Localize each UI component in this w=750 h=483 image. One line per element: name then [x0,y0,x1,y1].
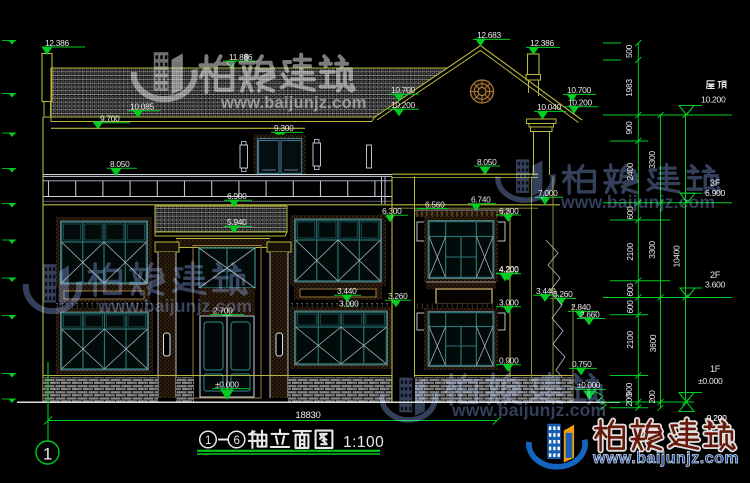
svg-text:8.050: 8.050 [110,159,130,169]
svg-text:900: 900 [624,121,634,135]
svg-text:12.386: 12.386 [530,38,554,48]
svg-text:3300: 3300 [647,151,657,169]
svg-text:3.260: 3.260 [388,291,408,301]
svg-text:200: 200 [647,390,657,404]
svg-text:10.040: 10.040 [537,102,561,112]
svg-text:6: 6 [233,435,239,447]
svg-text:9.700: 9.700 [100,114,120,124]
svg-text:11.886: 11.886 [229,52,253,62]
svg-text:5.940: 5.940 [227,217,247,227]
svg-text:2100: 2100 [625,243,635,261]
svg-text:3600: 3600 [648,334,658,352]
svg-text:2.660: 2.660 [580,309,600,319]
svg-text:www.baijunjz.com: www.baijunjz.com [97,296,252,316]
svg-text:10.700: 10.700 [391,85,415,95]
svg-text:www.baijunjz.com: www.baijunjz.com [220,94,367,112]
svg-text:18830: 18830 [295,410,320,421]
svg-text:±0.000: ±0.000 [698,376,723,386]
svg-text:3.000: 3.000 [499,298,519,308]
svg-text:10.200: 10.200 [568,98,592,108]
svg-text:3.440: 3.440 [337,286,357,296]
svg-text:6.560: 6.560 [425,199,445,209]
svg-text:1983: 1983 [624,79,634,97]
svg-text:10.200: 10.200 [701,95,726,105]
svg-text:2F: 2F [710,270,721,280]
svg-text:0.750: 0.750 [572,359,592,369]
svg-text:6.300: 6.300 [499,206,519,216]
svg-text:±0.000: ±0.000 [215,379,239,389]
svg-text:10400: 10400 [672,245,682,267]
svg-text:1F: 1F [710,364,721,374]
svg-text:600: 600 [625,283,635,297]
svg-text:10.200: 10.200 [391,100,415,110]
svg-text:3.000: 3.000 [339,298,359,308]
svg-text:200: 200 [624,393,634,407]
svg-text:3.600: 3.600 [705,280,726,290]
svg-text:1: 1 [205,435,211,447]
svg-text:10.085: 10.085 [130,102,154,112]
svg-text:12.386: 12.386 [45,38,69,48]
svg-text:3300: 3300 [647,241,657,259]
svg-text:1:100: 1:100 [343,434,384,451]
svg-text:6.740: 6.740 [471,195,491,205]
svg-text:2100: 2100 [625,331,635,349]
svg-text:500: 500 [624,44,634,58]
svg-text:4.200: 4.200 [499,265,519,275]
svg-text:9.300: 9.300 [274,123,294,133]
svg-text:12.683: 12.683 [477,30,501,40]
svg-text:0.900: 0.900 [499,356,519,366]
svg-text:1: 1 [43,445,52,464]
svg-text:www.baijunjz.com: www.baijunjz.com [451,400,606,420]
svg-text:8.050: 8.050 [477,157,497,167]
svg-text:www.baijunjz.com: www.baijunjz.com [592,450,739,467]
svg-text:www.baijunjz.com: www.baijunjz.com [560,192,715,212]
svg-text:-0.200: -0.200 [704,413,727,423]
svg-text:10.700: 10.700 [567,85,591,95]
svg-text:6.900: 6.900 [227,191,247,201]
svg-text:600: 600 [625,300,635,314]
